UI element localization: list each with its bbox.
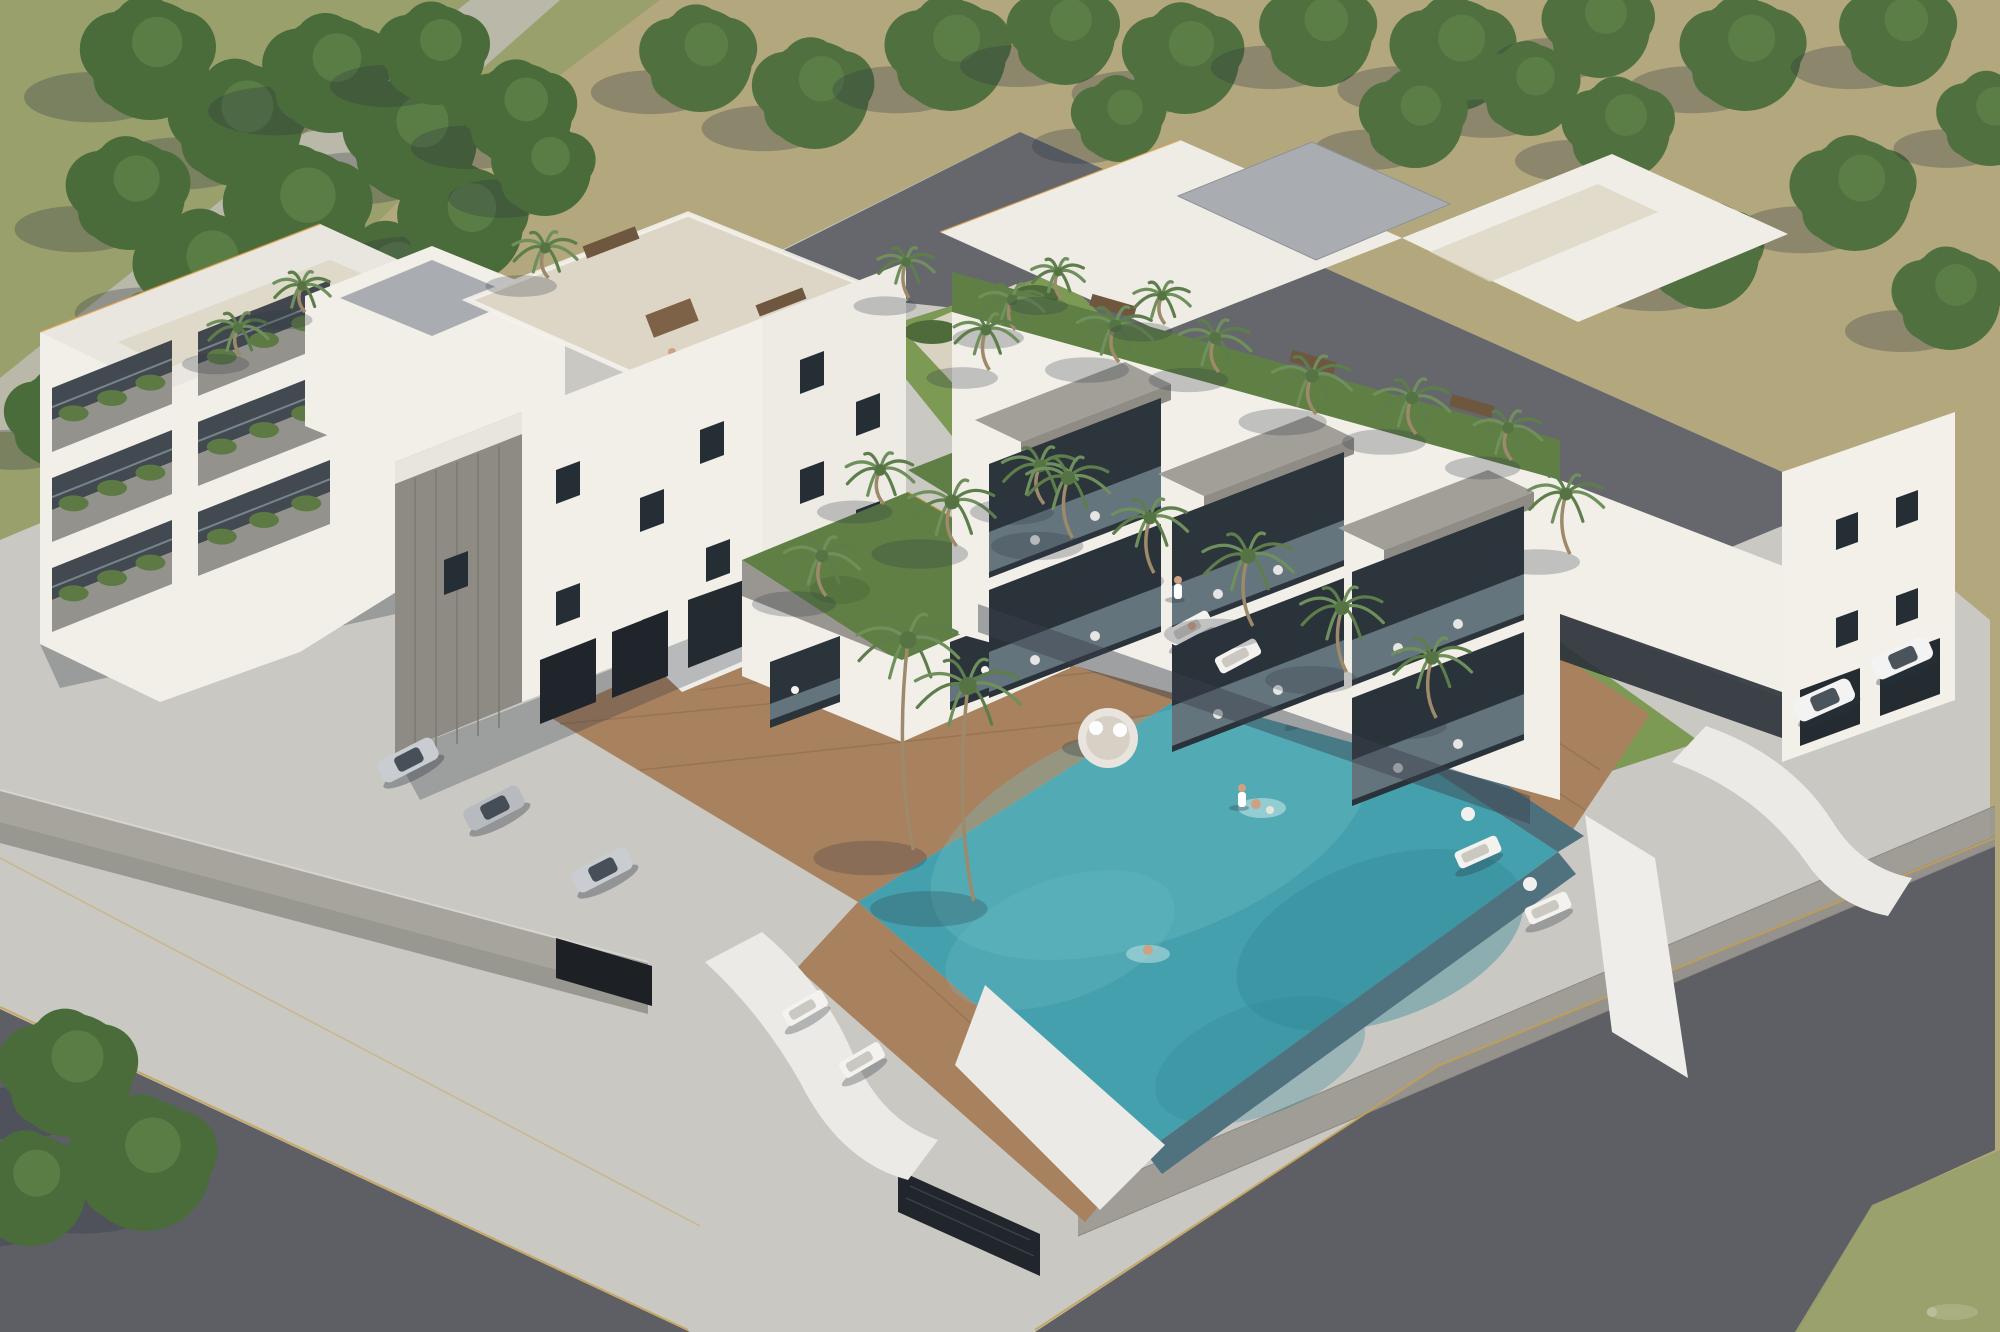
planter xyxy=(291,495,321,511)
palm-shadow xyxy=(927,367,998,389)
architectural-render-image xyxy=(0,0,2000,1332)
side-table xyxy=(1523,877,1537,891)
balcony-furniture xyxy=(1090,631,1100,641)
balcony-furniture xyxy=(1453,739,1463,749)
watermark xyxy=(1926,1304,1978,1320)
circ-shape xyxy=(1927,1307,1937,1317)
balcony-furniture xyxy=(1090,511,1100,521)
palm-shadow xyxy=(870,891,988,927)
palm-shadow xyxy=(182,354,249,374)
balcony-furniture xyxy=(1453,619,1463,629)
palm-shadow xyxy=(486,275,557,297)
planter xyxy=(59,405,89,421)
planter xyxy=(97,570,127,586)
planter xyxy=(59,495,89,511)
planter xyxy=(207,529,237,545)
palm-shadow xyxy=(1080,568,1164,594)
palm-shadow xyxy=(1359,713,1447,740)
palm-shadow xyxy=(854,296,917,315)
palm-shadow xyxy=(1009,297,1068,315)
swimmer-head xyxy=(1251,799,1261,809)
aerial-render-canvas xyxy=(0,0,2000,1332)
planter xyxy=(135,465,165,481)
swimmer-head xyxy=(1143,945,1153,955)
balcony-furniture xyxy=(1213,589,1223,599)
planter xyxy=(135,555,165,571)
planter xyxy=(249,422,279,438)
palm-shadow xyxy=(250,310,313,329)
circ-shape xyxy=(1113,723,1127,737)
planter xyxy=(135,375,165,391)
balcony-furniture xyxy=(1030,655,1040,665)
palm-shadow xyxy=(817,500,893,523)
palm-shadow xyxy=(1496,549,1580,575)
circ-shape xyxy=(1089,721,1103,735)
planter xyxy=(97,390,127,406)
side-table xyxy=(1461,807,1475,821)
planter xyxy=(207,439,237,455)
palm-shadow xyxy=(814,841,927,876)
hedge xyxy=(904,320,960,344)
palm-shadow xyxy=(1110,322,1173,341)
circ-shape xyxy=(791,686,799,694)
balcony-furniture xyxy=(1273,565,1283,575)
planter xyxy=(59,585,89,601)
planter xyxy=(97,480,127,496)
planter xyxy=(249,512,279,528)
circ-shape xyxy=(1266,806,1274,814)
